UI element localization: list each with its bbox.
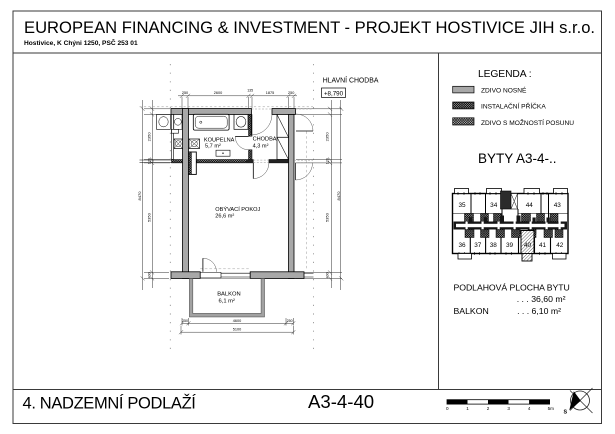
svg-text:5,7 m²: 5,7 m² (205, 144, 221, 150)
svg-text:38: 38 (490, 242, 498, 249)
svg-text:36: 36 (458, 242, 466, 249)
svg-text:4. NADZEMNÍ PODLAŽÍ: 4. NADZEMNÍ PODLAŽÍ (23, 394, 197, 413)
svg-text:250: 250 (182, 319, 188, 323)
svg-text:3: 3 (507, 406, 510, 411)
svg-text:2350: 2350 (147, 132, 152, 142)
svg-text:8470: 8470 (137, 191, 142, 201)
svg-text:250: 250 (288, 91, 294, 95)
svg-text:4600: 4600 (233, 319, 241, 323)
svg-text:KOUPELNA: KOUPELNA (204, 137, 235, 143)
svg-text:EUROPEAN FINANCING & INVESTMEN: EUROPEAN FINANCING & INVESTMENT - PROJEK… (24, 18, 595, 37)
svg-text:8470: 8470 (336, 191, 341, 201)
svg-text:1: 1 (466, 406, 469, 411)
svg-text:120: 120 (326, 158, 330, 164)
svg-text:INSTALAČNÍ PŘÍČKA: INSTALAČNÍ PŘÍČKA (481, 102, 546, 111)
svg-text:26,6 m²: 26,6 m² (215, 214, 234, 220)
svg-text:39: 39 (506, 242, 514, 249)
svg-text:4,3 m²: 4,3 m² (253, 144, 269, 150)
svg-text:5350: 5350 (147, 212, 152, 222)
svg-text:2350: 2350 (325, 132, 330, 142)
svg-text:S: S (564, 410, 568, 416)
svg-text:+8,790: +8,790 (324, 90, 344, 97)
svg-text:250: 250 (182, 91, 188, 95)
svg-text:35: 35 (458, 202, 466, 209)
svg-text:0: 0 (446, 406, 449, 411)
svg-text:37: 37 (474, 242, 482, 249)
svg-text:135: 135 (247, 89, 253, 93)
svg-text:PODLAHOVÁ PLOCHA BYTU: PODLAHOVÁ PLOCHA BYTU (454, 283, 570, 293)
svg-text:41: 41 (539, 242, 547, 249)
svg-text:5m: 5m (548, 406, 555, 411)
svg-text:BALKON: BALKON (217, 292, 241, 298)
svg-text:5350: 5350 (325, 212, 330, 222)
svg-text:1875: 1875 (266, 91, 274, 95)
svg-text:40: 40 (524, 242, 532, 249)
svg-text:2600: 2600 (214, 91, 222, 95)
svg-text:OBÝVACÍ POKOJ: OBÝVACÍ POKOJ (215, 206, 260, 213)
svg-text:A3-4-40: A3-4-40 (308, 391, 374, 412)
svg-text:400: 400 (326, 272, 330, 278)
svg-text:BYTY A3-4-..: BYTY A3-4-.. (478, 151, 557, 166)
svg-text:HLAVNÍ CHODBA: HLAVNÍ CHODBA (323, 76, 379, 85)
svg-text:LEGENDA :: LEGENDA : (478, 69, 531, 80)
svg-text:BALKON: BALKON (454, 306, 489, 316)
svg-text:4: 4 (528, 406, 531, 411)
svg-text:34: 34 (490, 202, 498, 209)
svg-text:. . . 6,10 m²: . . . 6,10 m² (517, 306, 561, 316)
svg-text:42: 42 (556, 242, 564, 249)
svg-text:Hostivice, K Chýni 1250, PSČ 2: Hostivice, K Chýni 1250, PSČ 253 01 (24, 38, 138, 47)
svg-text:ZDIVO S MOŽNOSTÍ POSUNU: ZDIVO S MOŽNOSTÍ POSUNU (481, 118, 574, 127)
svg-text:120: 120 (148, 158, 152, 164)
svg-text:CHODBA: CHODBA (253, 137, 277, 143)
svg-text:400: 400 (148, 272, 152, 278)
svg-text:ZDIVO NOSNÉ: ZDIVO NOSNÉ (481, 86, 527, 95)
svg-text:43: 43 (554, 202, 562, 209)
svg-text:6,1 m²: 6,1 m² (219, 298, 235, 304)
svg-text:250: 250 (287, 319, 293, 323)
svg-text:. . . 36,60 m²: . . . 36,60 m² (517, 294, 566, 304)
svg-text:5100: 5100 (233, 328, 241, 332)
svg-text:44: 44 (526, 202, 534, 209)
svg-text:2: 2 (487, 406, 490, 411)
